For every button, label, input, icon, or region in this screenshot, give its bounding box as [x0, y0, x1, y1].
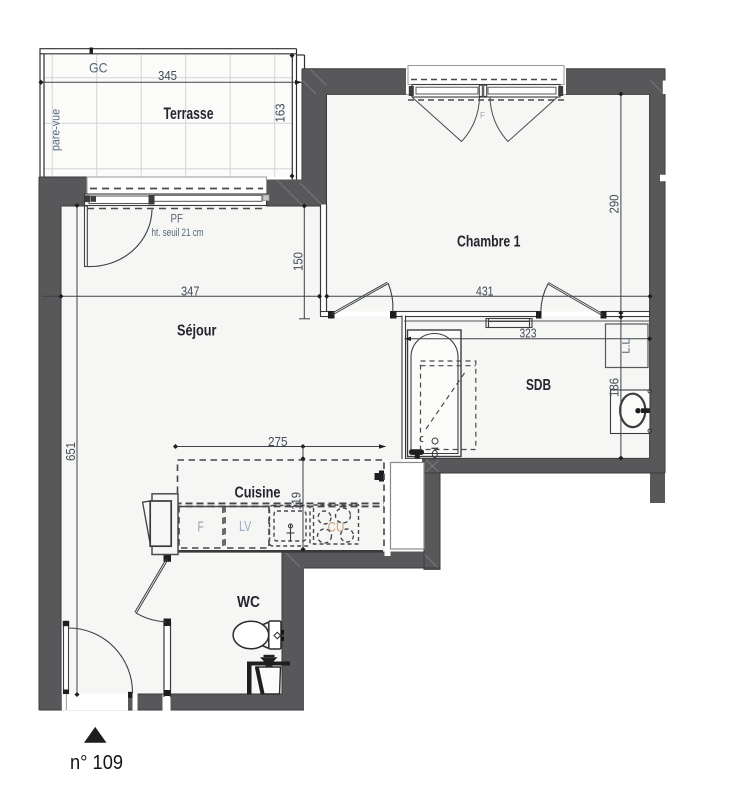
- svg-text:651: 651: [63, 442, 78, 461]
- svg-text:pare-vue: pare-vue: [49, 109, 63, 151]
- svg-text:Terrasse: Terrasse: [164, 104, 214, 123]
- svg-text:Séjour: Séjour: [177, 323, 217, 340]
- svg-text:SDB: SDB: [526, 377, 551, 394]
- svg-text:WC: WC: [237, 594, 260, 611]
- svg-text:ht. seuil 21 cm: ht. seuil 21 cm: [152, 227, 204, 239]
- svg-text:345: 345: [158, 68, 177, 83]
- svg-text:150: 150: [290, 252, 305, 271]
- svg-text:275: 275: [268, 434, 288, 449]
- svg-text:n° 109: n° 109: [70, 752, 123, 774]
- svg-text:119: 119: [289, 492, 304, 510]
- svg-text:PF: PF: [171, 211, 184, 225]
- svg-text:431: 431: [476, 284, 494, 299]
- svg-text:CU: CU: [328, 519, 345, 535]
- svg-text:290: 290: [607, 195, 622, 214]
- svg-text:Cuisine: Cuisine: [235, 485, 281, 502]
- svg-text:LV: LV: [239, 518, 251, 535]
- svg-text:347: 347: [181, 284, 200, 299]
- svg-text:186: 186: [607, 378, 622, 397]
- svg-text:L.L: L.L: [621, 338, 633, 353]
- svg-text:Chambre 1: Chambre 1: [457, 233, 521, 250]
- svg-text:F: F: [480, 111, 485, 120]
- svg-text:F: F: [198, 519, 204, 536]
- svg-text:323: 323: [520, 326, 537, 341]
- svg-text:GC: GC: [89, 60, 108, 76]
- svg-text:163: 163: [273, 104, 288, 123]
